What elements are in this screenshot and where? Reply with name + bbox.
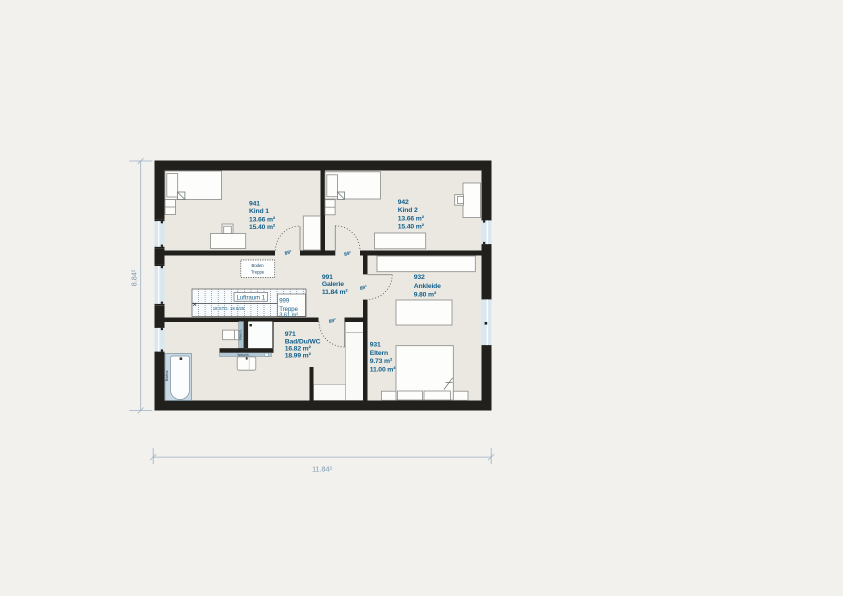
svg-text:Kind 1: Kind 1 [249, 208, 269, 215]
svg-text:941: 941 [249, 200, 260, 207]
svg-text:11.00 m²: 11.00 m² [370, 367, 397, 374]
svg-text:8.84²: 8.84² [130, 269, 139, 286]
svg-text:11.84²: 11.84² [312, 465, 332, 474]
svg-text:Bad/Du/WC: Bad/Du/WC [285, 338, 321, 345]
svg-text:15.40 m²: 15.40 m² [398, 224, 425, 231]
svg-text:971: 971 [285, 331, 296, 338]
svg-text:Wasch.: Wasch. [238, 329, 242, 340]
svg-text:Boden: Boden [252, 263, 265, 268]
svg-text:13.66 m²: 13.66 m² [398, 215, 425, 222]
svg-text:Kind 2: Kind 2 [398, 207, 418, 214]
svg-text:16.82 m²: 16.82 m² [285, 345, 312, 352]
svg-text:932: 932 [414, 274, 425, 281]
svg-text:991: 991 [322, 274, 333, 281]
svg-text:Treppe: Treppe [251, 269, 265, 274]
svg-text:3.61 m²: 3.61 m² [279, 312, 298, 318]
svg-text:18.99 m²: 18.99 m² [285, 353, 312, 360]
svg-text:999: 999 [279, 298, 290, 304]
svg-text:18 STG. 18.5/25: 18 STG. 18.5/25 [213, 306, 245, 311]
svg-text:Luftraum 1: Luftraum 1 [236, 295, 265, 301]
svg-text:Galerie: Galerie [322, 281, 344, 288]
svg-text:Ankleide: Ankleide [414, 283, 441, 290]
svg-text:9.80 m²: 9.80 m² [414, 292, 437, 299]
svg-text:9.73 m²: 9.73 m² [370, 358, 393, 365]
svg-text:Eltern: Eltern [370, 350, 388, 357]
svg-text:Badew.: Badew. [165, 370, 169, 381]
svg-text:13.66 m²: 13.66 m² [249, 217, 276, 224]
svg-text:942: 942 [398, 199, 409, 206]
svg-text:11.84 m²: 11.84 m² [322, 289, 349, 296]
svg-text:931: 931 [370, 342, 381, 349]
svg-text:15.40 m²: 15.40 m² [249, 224, 276, 231]
svg-text:Waschb.: Waschb. [237, 353, 249, 357]
